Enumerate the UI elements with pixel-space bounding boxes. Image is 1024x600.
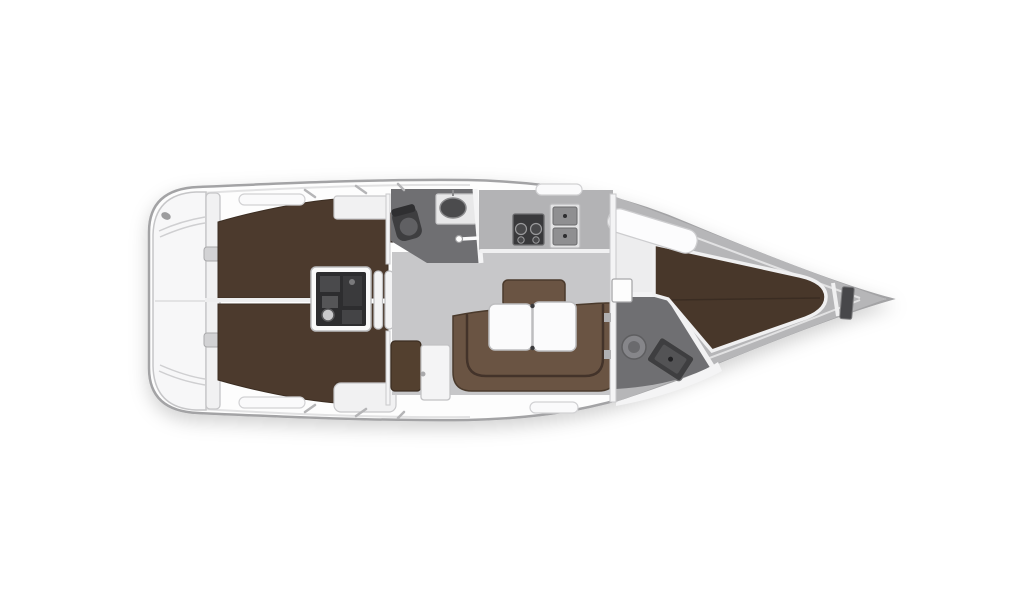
cockpit-bench-bottom (239, 397, 305, 408)
chart-table-knob (421, 372, 426, 377)
galley-counter-edge (479, 249, 613, 253)
aft-cabin-divider (205, 298, 313, 302)
yacht-floor-plan (0, 0, 1024, 600)
salon-table-leaf (489, 304, 532, 350)
engine-part (342, 310, 362, 324)
engine-compartment (311, 267, 371, 331)
cockpit-bench-top (239, 194, 305, 205)
galley (479, 190, 613, 253)
drain (563, 234, 567, 238)
forward-cabin-door (612, 279, 632, 302)
engine-gauge (322, 309, 334, 321)
floor-plan-canvas (0, 0, 1024, 600)
burner (518, 237, 524, 243)
chart-table (421, 345, 450, 400)
nav-seat (391, 341, 421, 391)
burner (533, 237, 539, 243)
aft-bulkhead-top (386, 194, 390, 264)
table-hinge (530, 304, 534, 308)
deck-hatch-bottom (530, 402, 578, 413)
door-knob (456, 236, 463, 243)
deck-hatch-top (536, 184, 582, 195)
door-hinge (604, 313, 611, 322)
anchor-locker-hatch (840, 287, 855, 320)
burner (516, 224, 527, 235)
step (374, 271, 383, 329)
nav-station (391, 341, 450, 400)
door-hinge (604, 350, 611, 359)
engine-cap (349, 279, 355, 285)
table-hinge (530, 346, 534, 350)
engine-part (320, 276, 340, 292)
aft-cabinet-top (334, 196, 388, 219)
aft-head-door (461, 238, 479, 239)
aft-head-basin (440, 198, 466, 218)
drain (563, 214, 567, 218)
burner (531, 224, 542, 235)
swim-platform (153, 192, 206, 410)
engine-part (322, 296, 338, 308)
toilet-forward-bowl (628, 341, 640, 353)
salon-table-leaf (533, 302, 576, 351)
galley-counter (479, 190, 613, 252)
aft-bulkhead-bottom (386, 331, 390, 405)
